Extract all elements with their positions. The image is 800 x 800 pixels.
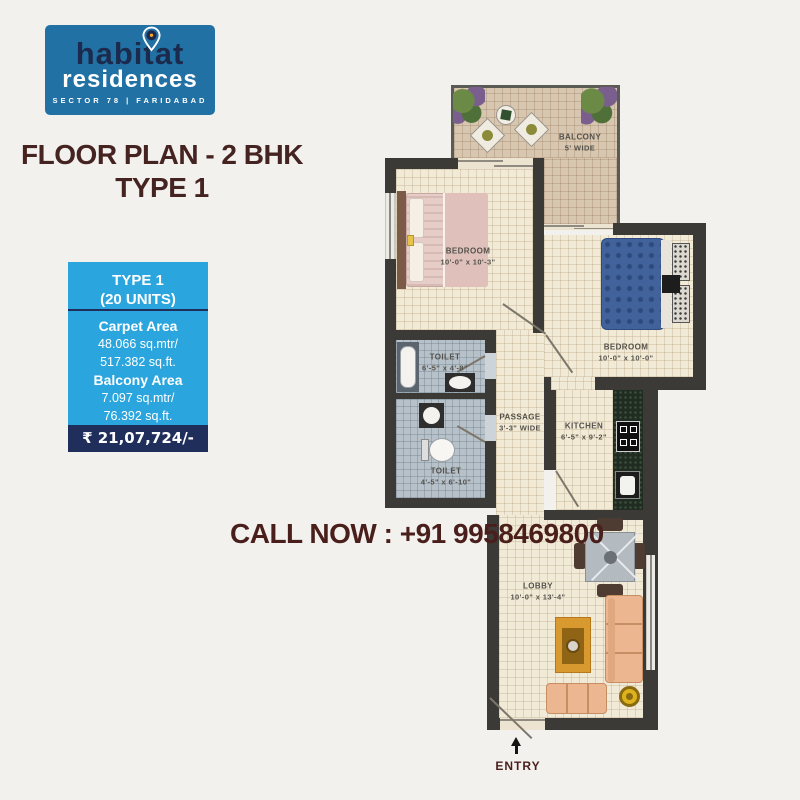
page-title: FLOOR PLAN - 2 BHK TYPE 1 — [14, 138, 310, 204]
wash-basin — [419, 403, 444, 428]
balcony-area-label: Balcony Area — [68, 371, 208, 389]
location-pin-icon — [142, 26, 161, 52]
gas-stove — [616, 421, 640, 452]
bedside-lamp — [407, 235, 414, 246]
bedroom-2-door-opening — [551, 377, 595, 390]
balcony-area-ft: 76.392 sq.ft. — [68, 407, 208, 425]
toilet-1-door-opening — [485, 353, 496, 379]
room-name: TOILET — [421, 467, 471, 478]
page-title-line1: FLOOR PLAN - 2 BHK — [14, 138, 310, 171]
brand-tagline: SECTOR 78 | FARIDABAD — [45, 96, 215, 105]
room-name: KITCHEN — [561, 422, 607, 433]
room-label-balcony: BALCONY 5' WIDE — [559, 133, 601, 154]
unit-type: TYPE 1 — [68, 271, 208, 290]
balcony-railing-right — [617, 85, 620, 225]
bed-blanket — [443, 193, 488, 287]
room-dims: 10'-0" x 10'-0" — [598, 353, 653, 363]
unit-count: (20 UNITS) — [68, 290, 208, 309]
wash-basin — [445, 373, 475, 392]
carpet-area-ft: 517.382 sq.ft. — [68, 353, 208, 371]
room-dims: 4'-5" x 6'-10" — [421, 477, 471, 487]
brand-logo: habitat residences SECTOR 78 | FARIDABAD — [45, 25, 215, 115]
entry-label: ENTRY — [483, 759, 553, 773]
room-dims: 5' WIDE — [559, 143, 601, 153]
page-title-line2: TYPE 1 — [14, 171, 310, 204]
brand-name-residences: residences — [45, 68, 215, 91]
sofa-vertical — [605, 595, 643, 683]
brand-name-habitat: habitat — [45, 40, 215, 68]
balcony-plant — [453, 87, 485, 127]
price-strip: ₹ 21,07,724/- — [68, 425, 208, 452]
wall — [693, 223, 706, 390]
bedroom-2-balcony-door — [544, 224, 613, 230]
room-label-bedroom-2: BEDROOM 10'-0" x 10'-0" — [598, 343, 653, 364]
side-table — [619, 686, 640, 707]
toilet-2-door-opening — [485, 415, 496, 441]
wall — [396, 393, 485, 399]
room-label-lobby: LOBBY 10'-0" x 13'-4" — [510, 582, 565, 603]
room-dims: 3'-3" WIDE — [499, 423, 541, 433]
room-label-toilet-1: TOILET 6'-5" x 4'-8" — [422, 353, 468, 374]
unit-type-header: TYPE 1 (20 UNITS) — [68, 262, 208, 309]
pillow — [409, 198, 424, 238]
sofa-horizontal — [546, 683, 607, 714]
kitchen-sink — [615, 471, 640, 499]
bed-headboard — [397, 191, 406, 289]
room-dims: 6'-5" x 4'-8" — [422, 363, 468, 373]
lobby-rug — [555, 617, 591, 673]
room-dims: 6'-5" x 9'-2" — [561, 432, 607, 442]
room-name: BEDROOM — [440, 247, 495, 258]
carpet-area-label: Carpet Area — [68, 317, 208, 335]
balcony-plant — [581, 87, 617, 127]
room-label-passage: PASSAGE 3'-3" WIDE — [499, 413, 541, 434]
pillow — [409, 242, 424, 282]
entry-arrow-stem — [515, 745, 518, 754]
balcony-table — [496, 105, 516, 125]
room-name: BALCONY — [559, 133, 601, 144]
room-name: BEDROOM — [598, 343, 653, 354]
bed-cushion — [662, 275, 680, 293]
room-dims: 10'-0" x 10'-3" — [440, 257, 495, 267]
wall — [385, 330, 496, 340]
call-now-text: CALL NOW : +91 9958469800 — [230, 518, 604, 550]
wall — [544, 390, 556, 470]
floor-plan: BALCONY 5' WIDE BEDROOM 10'-0" x 10'-3" … — [383, 85, 716, 785]
balcony-sliding-door — [458, 158, 537, 169]
room-name: PASSAGE — [499, 413, 541, 424]
room-label-kitchen: KITCHEN 6'-5" x 9'-2" — [561, 422, 607, 443]
bathtub — [400, 346, 416, 388]
double-bed-blue — [601, 238, 665, 330]
wc-tank — [421, 439, 429, 461]
wc-toilet — [429, 438, 455, 462]
unit-areas: Carpet Area 48.066 sq.mtr/ 517.382 sq.ft… — [68, 311, 208, 425]
lobby-window — [646, 555, 655, 670]
unit-spec-card: TYPE 1 (20 UNITS) Carpet Area 48.066 sq.… — [68, 262, 208, 452]
room-label-bedroom-1: BEDROOM 10'-0" x 10'-3" — [440, 247, 495, 268]
bedroom-1-window — [385, 193, 396, 259]
room-name: TOILET — [422, 353, 468, 364]
kitchen-floor — [556, 390, 613, 510]
room-label-toilet-2: TOILET 4'-5" x 6'-10" — [421, 467, 471, 488]
balcony-floor-extension — [544, 158, 617, 224]
wall — [533, 158, 544, 333]
room-name: LOBBY — [510, 582, 565, 593]
wall — [385, 498, 496, 508]
balcony-area-mtr: 7.097 sq.mtr/ — [68, 389, 208, 407]
room-dims: 10'-0" x 13'-4" — [510, 592, 565, 602]
carpet-area-mtr: 48.066 sq.mtr/ — [68, 335, 208, 353]
